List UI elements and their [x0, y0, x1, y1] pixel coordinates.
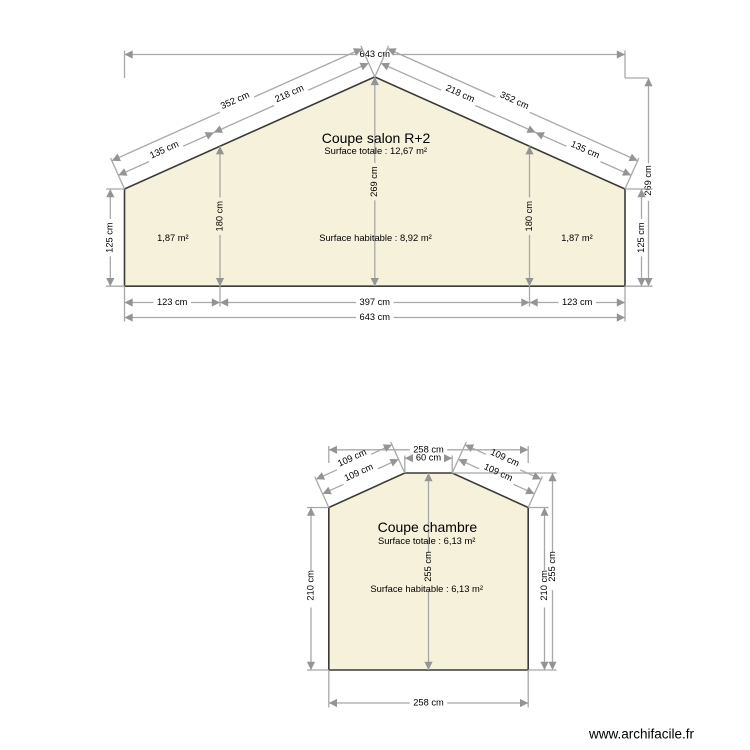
svg-text:1,87 m²: 1,87 m² [157, 233, 189, 243]
svg-text:255 cm: 255 cm [547, 551, 557, 582]
svg-text:643 cm: 643 cm [360, 312, 391, 322]
svg-text:Coupe salon R+2: Coupe salon R+2 [322, 130, 431, 146]
svg-text:125 cm: 125 cm [105, 222, 115, 253]
svg-text:258 cm: 258 cm [413, 697, 444, 707]
svg-text:210 cm: 210 cm [305, 570, 315, 601]
svg-text:123 cm: 123 cm [562, 297, 593, 307]
svg-text:125 cm: 125 cm [636, 222, 646, 253]
svg-text:352 cm: 352 cm [499, 90, 531, 112]
svg-text:Surface habitable : 6,13 m²: Surface habitable : 6,13 m² [370, 583, 483, 594]
svg-text:180 cm: 180 cm [214, 201, 224, 232]
svg-text:Surface habitable : 8,92 m²: Surface habitable : 8,92 m² [319, 232, 432, 243]
svg-text:1,87 m²: 1,87 m² [561, 233, 593, 243]
svg-text:60 cm: 60 cm [416, 453, 442, 463]
svg-text:Surface totale : 12,67 m²: Surface totale : 12,67 m² [324, 145, 427, 156]
svg-text:255 cm: 255 cm [423, 551, 433, 582]
svg-text:352 cm: 352 cm [219, 89, 251, 111]
svg-text:Surface totale : 6,13 m²: Surface totale : 6,13 m² [378, 535, 475, 546]
svg-text:269 cm: 269 cm [369, 166, 379, 197]
svg-text:Coupe chambre: Coupe chambre [378, 519, 478, 535]
svg-text:397 cm: 397 cm [360, 297, 391, 307]
svg-text:180 cm: 180 cm [524, 201, 534, 232]
svg-text:123 cm: 123 cm [157, 297, 188, 307]
svg-text:www.archifacile.fr: www.archifacile.fr [588, 727, 695, 742]
svg-text:269 cm: 269 cm [643, 165, 653, 196]
